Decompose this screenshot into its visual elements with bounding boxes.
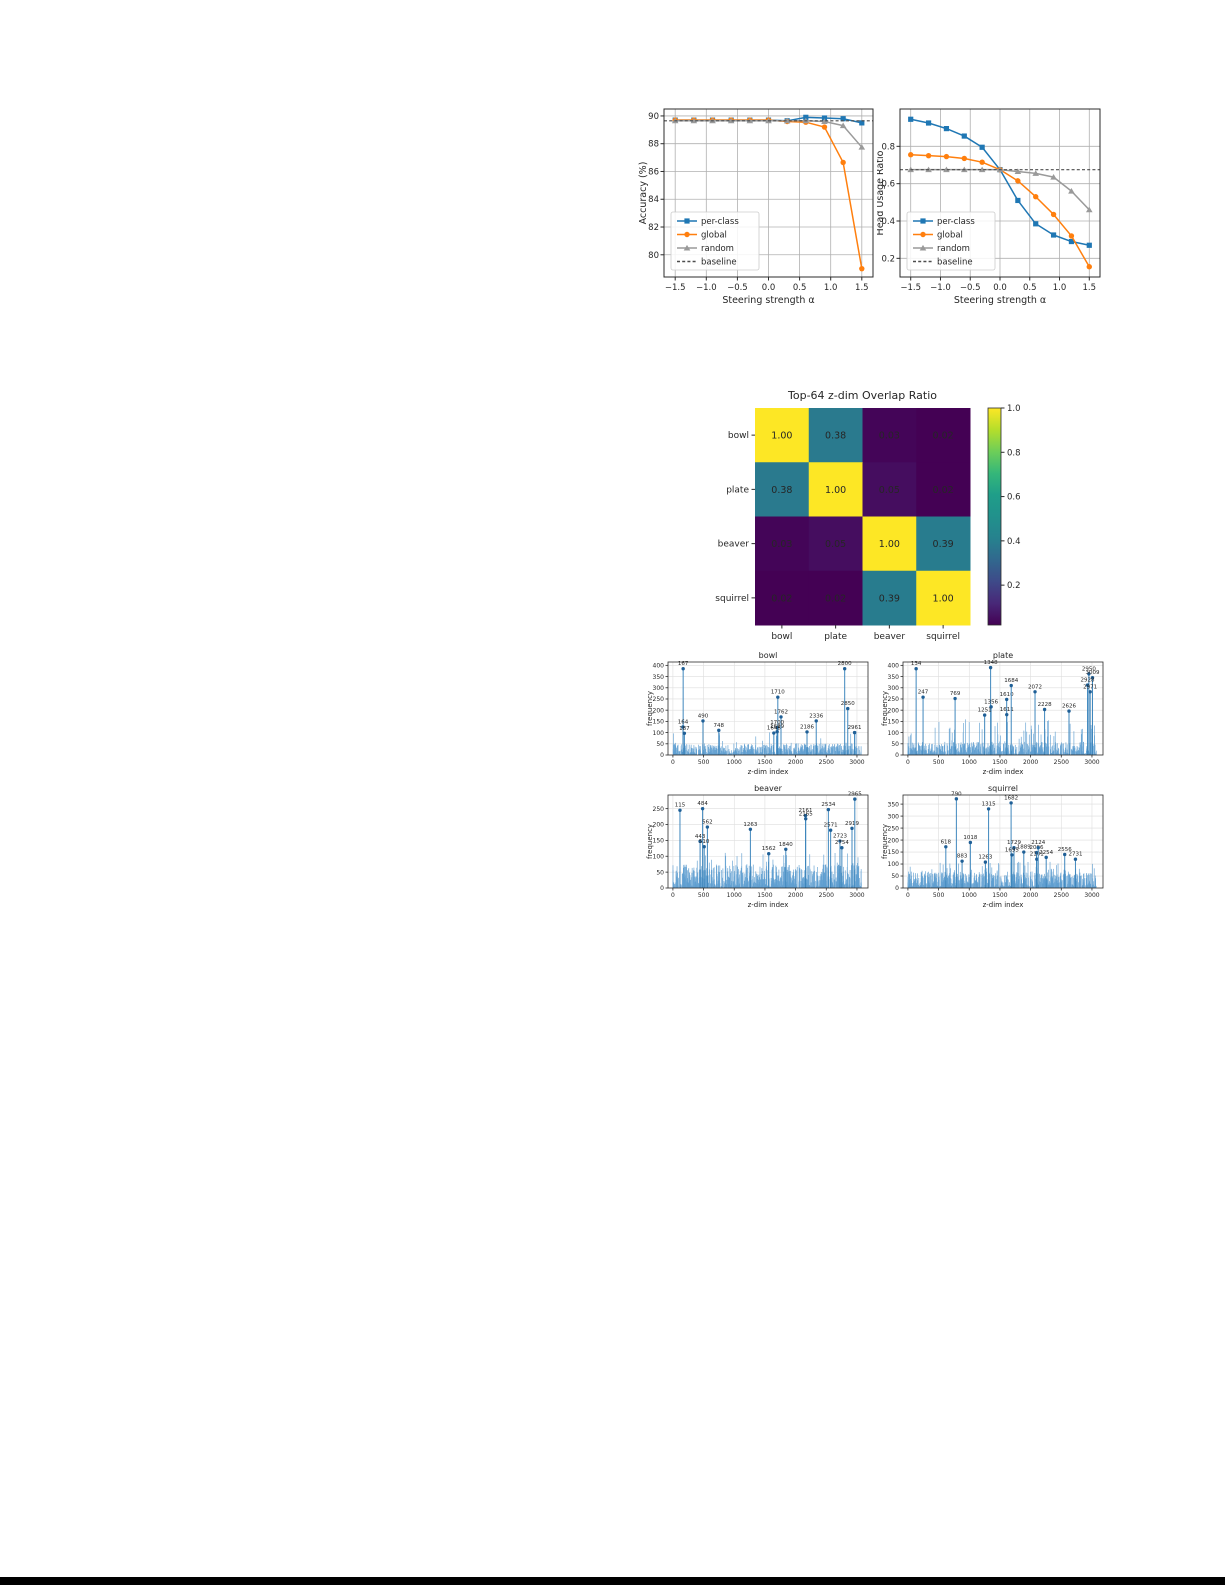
svg-text:500: 500 [933,892,945,899]
svg-text:1.0: 1.0 [824,283,838,293]
svg-text:2850: 2850 [841,701,855,707]
svg-text:−1.0: −1.0 [696,283,717,293]
svg-text:80: 80 [648,251,659,261]
svg-text:1710: 1710 [771,690,785,696]
svg-text:500: 500 [933,759,945,766]
accuracy-line-chart: −1.5−1.0−0.50.00.51.01.5808284868890Stee… [637,93,877,308]
svg-text:0.0: 0.0 [762,283,776,293]
svg-text:100: 100 [653,853,665,860]
svg-text:2971: 2971 [1083,684,1097,690]
svg-text:500: 500 [698,892,710,899]
svg-text:1500: 1500 [757,892,772,899]
svg-text:618: 618 [941,839,952,845]
svg-text:0: 0 [895,752,899,759]
svg-text:squirrel: squirrel [926,632,960,642]
svg-text:84: 84 [648,195,659,205]
squirrel-frequency-chart: 6187908831018126313151682172916951889209… [880,781,1115,914]
svg-text:random: random [701,244,734,254]
svg-text:90: 90 [648,112,659,122]
svg-text:3000: 3000 [849,759,864,766]
svg-text:2254: 2254 [1039,850,1053,856]
svg-text:z-dim index: z-dim index [748,768,789,776]
svg-text:0.38: 0.38 [825,431,846,442]
svg-text:50: 50 [656,869,664,876]
svg-text:frequency: frequency [881,824,889,859]
svg-text:0: 0 [895,885,899,892]
svg-text:2571: 2571 [824,823,838,829]
svg-text:Steering strength α: Steering strength α [954,295,1046,306]
svg-text:0.0: 0.0 [993,283,1007,293]
svg-text:164: 164 [678,719,689,725]
svg-text:squirrel: squirrel [988,784,1018,793]
svg-text:z-dim index: z-dim index [983,768,1024,776]
svg-text:2186: 2186 [800,724,814,730]
svg-text:2731: 2731 [1068,852,1082,858]
svg-text:2124: 2124 [1031,840,1045,846]
svg-text:1000: 1000 [727,759,742,766]
svg-text:1315: 1315 [982,801,996,807]
svg-text:2500: 2500 [1054,759,1069,766]
svg-text:150: 150 [888,719,900,726]
svg-text:0.39: 0.39 [933,539,954,550]
svg-text:2000: 2000 [788,759,803,766]
svg-text:2961: 2961 [848,725,862,731]
svg-text:0.03: 0.03 [879,431,900,442]
svg-text:per-class: per-class [701,217,739,227]
svg-text:883: 883 [957,854,968,860]
svg-text:2336: 2336 [809,713,823,719]
svg-text:1840: 1840 [779,842,793,848]
svg-text:−1.5: −1.5 [665,283,686,293]
svg-text:100: 100 [653,730,665,737]
svg-text:50: 50 [656,741,664,748]
svg-text:1500: 1500 [992,759,1007,766]
svg-text:0: 0 [671,892,675,899]
svg-text:2072: 2072 [1028,684,1042,690]
svg-text:0.05: 0.05 [879,485,900,496]
svg-text:150: 150 [653,719,665,726]
svg-text:2534: 2534 [821,802,835,808]
svg-text:1762: 1762 [774,709,788,715]
svg-text:0.39: 0.39 [879,593,900,604]
svg-text:frequency: frequency [646,691,654,726]
svg-text:global: global [937,231,963,241]
svg-text:1.00: 1.00 [879,539,900,550]
svg-text:510: 510 [699,839,710,845]
svg-text:frequency: frequency [646,824,654,859]
svg-text:88: 88 [648,140,659,150]
svg-text:2754: 2754 [835,840,849,846]
svg-text:350: 350 [888,801,900,808]
svg-text:2165: 2165 [799,811,813,817]
svg-text:−1.0: −1.0 [930,283,951,293]
svg-text:beaver: beaver [754,784,783,793]
svg-text:1562: 1562 [762,846,776,852]
svg-text:Steering strength α: Steering strength α [722,295,814,306]
svg-text:400: 400 [653,663,665,670]
svg-text:frequency: frequency [881,691,889,726]
svg-text:−1.5: −1.5 [900,283,921,293]
svg-text:2500: 2500 [1054,892,1069,899]
svg-text:squirrel: squirrel [715,594,749,604]
svg-text:484: 484 [697,801,708,807]
svg-text:0.02: 0.02 [933,485,954,496]
svg-text:200: 200 [888,837,900,844]
page-bottom-border [0,1577,1225,1585]
svg-text:1263: 1263 [978,855,992,861]
svg-text:247: 247 [918,690,929,696]
svg-text:2723: 2723 [833,834,847,840]
svg-text:115: 115 [675,803,686,809]
svg-text:Top-64 z-dim Overlap Ratio: Top-64 z-dim Overlap Ratio [787,389,937,402]
svg-text:1356: 1356 [984,699,998,705]
svg-text:250: 250 [653,696,665,703]
svg-text:0.4: 0.4 [1007,537,1021,547]
svg-text:0.8: 0.8 [1007,448,1021,458]
svg-text:2000: 2000 [788,892,803,899]
head-usage-line-chart: −1.5−1.0−0.50.00.51.01.50.20.40.60.8Stee… [877,93,1107,308]
svg-text:1.00: 1.00 [771,431,792,442]
svg-text:0.38: 0.38 [771,485,792,496]
svg-text:0: 0 [671,759,675,766]
svg-text:−0.5: −0.5 [727,283,748,293]
svg-text:150: 150 [888,849,900,856]
svg-text:0: 0 [906,892,910,899]
svg-text:2228: 2228 [1038,702,1052,708]
plate-frequency-chart: 1342477691348135612511610161116842072222… [880,648,1115,781]
svg-text:1018: 1018 [963,835,977,841]
svg-text:3009: 3009 [1086,670,1100,676]
svg-text:3000: 3000 [849,892,864,899]
svg-text:82: 82 [648,223,659,233]
svg-text:350: 350 [888,674,900,681]
svg-text:1684: 1684 [1004,678,1018,684]
svg-text:100: 100 [888,861,900,868]
svg-text:1699: 1699 [770,724,784,730]
svg-text:1500: 1500 [757,759,772,766]
svg-text:250: 250 [653,806,665,813]
svg-text:2928: 2928 [1081,678,1095,684]
svg-text:748: 748 [714,723,725,729]
svg-text:random: random [937,244,970,254]
svg-text:0.02: 0.02 [825,593,846,604]
beaver-frequency-chart: 1154845624435101263156218402161216525342… [645,781,880,914]
svg-text:1.00: 1.00 [825,485,846,496]
svg-text:1000: 1000 [727,892,742,899]
overlap-heatmap: Top-64 z-dim Overlap Ratio1.000.380.030.… [700,385,1050,653]
svg-text:0: 0 [660,752,664,759]
svg-text:500: 500 [698,759,710,766]
svg-text:z-dim index: z-dim index [748,901,789,909]
svg-text:global: global [701,231,727,241]
svg-text:150: 150 [653,838,665,845]
svg-text:0.5: 0.5 [793,283,807,293]
svg-text:1.5: 1.5 [855,283,869,293]
svg-text:beaver: beaver [874,632,906,642]
svg-text:1610: 1610 [1000,692,1014,698]
svg-text:0.2: 0.2 [1007,581,1021,591]
svg-text:50: 50 [891,873,899,880]
svg-text:250: 250 [888,696,900,703]
svg-text:769: 769 [950,691,961,697]
svg-text:200: 200 [888,707,900,714]
svg-text:1263: 1263 [743,822,757,828]
svg-text:2500: 2500 [819,759,834,766]
svg-text:0.02: 0.02 [771,593,792,604]
svg-text:790: 790 [951,791,962,797]
svg-text:z-dim index: z-dim index [983,901,1024,909]
bowl-frequency-chart: 1671641874907481710176217001645169921862… [645,648,880,781]
svg-text:plate: plate [726,485,749,495]
svg-text:0.5: 0.5 [1023,283,1037,293]
page-canvas: −1.5−1.0−0.50.00.51.01.5808284868890Stee… [0,0,1225,1585]
svg-text:250: 250 [888,825,900,832]
svg-text:187: 187 [679,726,690,732]
svg-text:0: 0 [660,885,664,892]
svg-text:1682: 1682 [1004,795,1018,801]
svg-text:1.5: 1.5 [1083,283,1097,293]
svg-text:1.0: 1.0 [1007,404,1021,414]
svg-text:2000: 2000 [1023,892,1038,899]
svg-text:1000: 1000 [962,892,977,899]
svg-text:400: 400 [888,663,900,670]
svg-text:2919: 2919 [845,821,859,827]
svg-text:350: 350 [653,674,665,681]
svg-text:bowl: bowl [759,651,778,660]
svg-text:300: 300 [888,685,900,692]
svg-text:per-class: per-class [937,217,975,227]
svg-text:bowl: bowl [728,431,749,441]
svg-text:0.05: 0.05 [825,539,846,550]
svg-text:2500: 2500 [819,892,834,899]
svg-text:1.00: 1.00 [933,593,954,604]
svg-text:1348: 1348 [984,660,998,666]
svg-text:0.02: 0.02 [933,431,954,442]
overlap-heatmap-figure: Top-64 z-dim Overlap Ratio1.000.380.030.… [700,385,1050,657]
svg-text:2000: 2000 [1023,759,1038,766]
svg-text:1000: 1000 [962,759,977,766]
svg-text:562: 562 [702,820,713,826]
svg-text:200: 200 [653,707,665,714]
svg-text:100: 100 [888,730,900,737]
svg-text:0.2: 0.2 [881,254,895,264]
steering-line-charts-figure: −1.5−1.0−0.50.00.51.01.5808284868890Stee… [637,93,1107,308]
svg-text:baseline: baseline [701,258,737,268]
svg-text:baseline: baseline [937,258,973,268]
svg-text:300: 300 [653,685,665,692]
svg-text:beaver: beaver [718,540,750,550]
svg-text:0: 0 [906,759,910,766]
svg-text:plate: plate [824,632,847,642]
svg-text:−0.5: −0.5 [960,283,981,293]
frequency-spike-figure: 1671641874907481710176217001645169921862… [645,648,1115,914]
svg-text:Head Usage Ratio: Head Usage Ratio [877,150,886,235]
svg-text:3000: 3000 [1084,759,1099,766]
svg-text:0.6: 0.6 [1007,493,1021,503]
svg-text:200: 200 [653,822,665,829]
svg-text:300: 300 [888,813,900,820]
svg-text:0.03: 0.03 [771,539,792,550]
svg-text:1251: 1251 [978,708,992,714]
svg-text:490: 490 [698,713,709,719]
svg-text:plate: plate [993,651,1013,660]
svg-text:1.0: 1.0 [1053,283,1067,293]
svg-text:2626: 2626 [1062,704,1076,710]
svg-text:3000: 3000 [1084,892,1099,899]
svg-text:50: 50 [891,741,899,748]
svg-text:86: 86 [648,167,659,177]
svg-text:Accuracy (%): Accuracy (%) [638,162,649,225]
svg-text:1500: 1500 [992,892,1007,899]
svg-text:bowl: bowl [771,632,792,642]
